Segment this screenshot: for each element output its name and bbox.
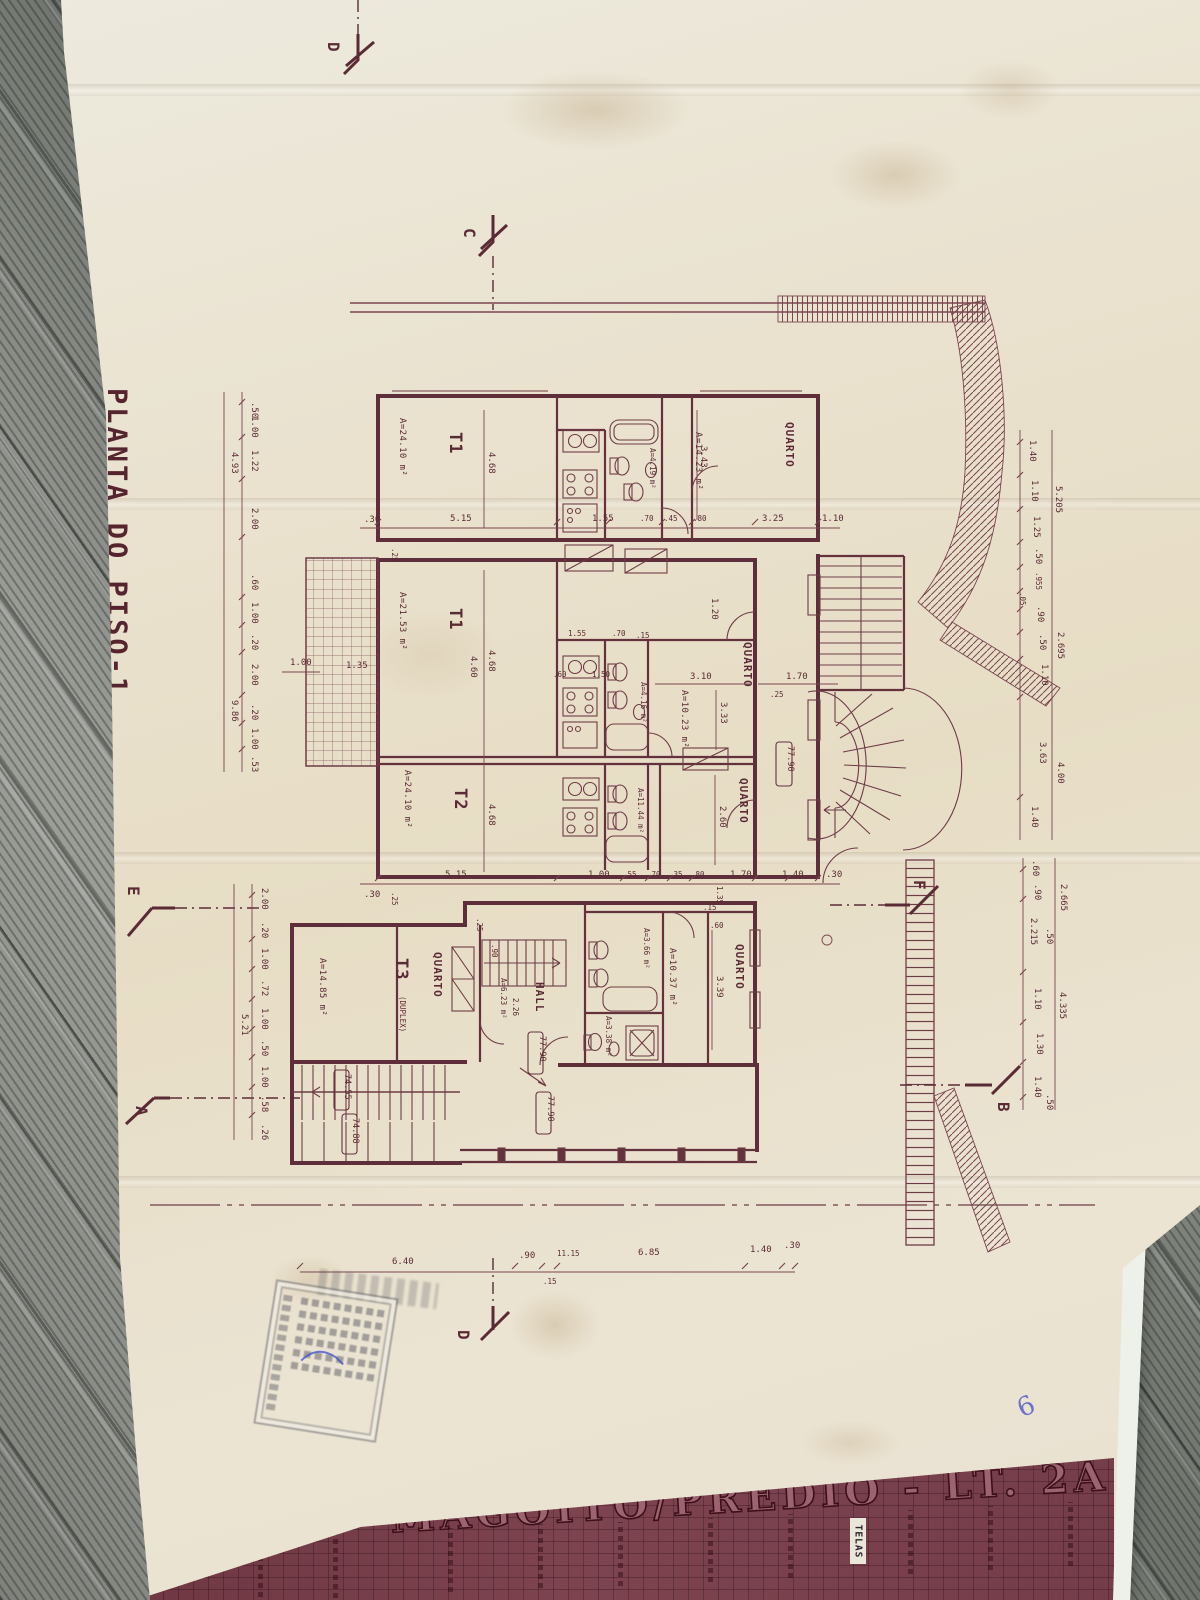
dim-label: 3.33 [718, 702, 728, 724]
dim-label: .25 [390, 892, 399, 906]
dim-label: .30 [826, 870, 842, 880]
dim-label: .20 [249, 704, 259, 720]
dim-label: .50 [1044, 1094, 1054, 1110]
dim-label: 1.40 [1029, 806, 1039, 828]
section-letter: C [460, 228, 479, 238]
dim-label: 3.43 [698, 446, 708, 468]
blueprint-sheet: PLANTA DO PISO-1 [0, 0, 1200, 1600]
bath-area-419: A=4.19 m² [648, 448, 657, 489]
dim-label: 1.00 [588, 870, 610, 880]
dim-label: .30 [364, 890, 380, 900]
dim-label: 4.68 [486, 650, 496, 672]
dim-label: 1.22 [249, 450, 259, 472]
room-label-t2: T2 [450, 788, 470, 810]
dim-total: 4.335 [1057, 992, 1067, 1019]
room-label-quarto-t3: QUARTO [431, 952, 444, 998]
dim-label: .80 [691, 870, 705, 879]
level-label: 77.90 [537, 1036, 547, 1062]
dim-label: 1.10 [1029, 480, 1039, 502]
dim-label: .25 [390, 548, 399, 562]
dim-label: 6.85 [638, 1248, 660, 1258]
dim-label: 1.40 [1027, 440, 1037, 462]
dim-label: 2.00 [249, 508, 259, 530]
title-block-column [708, 1518, 713, 1582]
section-letter: D [324, 42, 343, 52]
room-area-t1a: A=24.10 m² [397, 418, 407, 476]
room-label-quarto-top: QUARTO [783, 422, 796, 468]
dim-label: .30 [364, 515, 380, 525]
dim-label: 1.25 [1031, 516, 1041, 538]
dim-label: .45 [664, 514, 678, 523]
dim-label: .70 [640, 514, 654, 523]
room-area-t2: A=24.10 m² [402, 770, 412, 828]
dim-label: .20 [259, 922, 269, 938]
dim-label: .70 [647, 870, 661, 879]
dim-label: .26 [259, 1124, 269, 1140]
dim-label: 1.00 [290, 658, 312, 668]
dim-label: 5.15 [450, 514, 472, 524]
section-letter: D [454, 1330, 473, 1340]
dim-label: .955 [1034, 572, 1043, 590]
dim-label: 1.00 [259, 1008, 269, 1030]
bath-area-338: A=3.38 m² [604, 1016, 613, 1057]
bath-area-366: A=3.66 m² [642, 928, 651, 969]
title-block-column [988, 1506, 993, 1570]
dim-label: .50 [1037, 634, 1047, 650]
dim-label: 1.10 [822, 514, 844, 524]
dim-label: 1.40 [1032, 1076, 1042, 1098]
dim-total: 2.665 [1058, 884, 1068, 911]
title-block-column [618, 1522, 623, 1586]
room-label-t1a: T1 [445, 432, 465, 454]
floor-plan-drawing: 77.90 77.90 77.90 74.55 74.88 [0, 0, 1200, 1600]
dim-label: 1.50 [592, 670, 611, 679]
room-area-1037: A=10.37 m² [667, 948, 677, 1006]
dim-label: 3.10 [690, 672, 712, 682]
dim-label: 5.15 [445, 870, 467, 880]
dim-label: 1.00 [249, 602, 259, 624]
title-block-column [908, 1510, 913, 1574]
dim-label: 4.68 [486, 804, 496, 826]
dim-label: .90 [490, 944, 499, 958]
room-label-hall: HALL [533, 982, 546, 1013]
dim-label: .60 [710, 921, 724, 930]
dim-label: .55 [623, 870, 637, 879]
room-area-hall: A=6.23 m² [499, 978, 508, 1019]
dim-label: 1.00 [249, 416, 259, 438]
dim-label: .15 [703, 903, 717, 912]
dim-label: 1.30 [1034, 1033, 1044, 1055]
dim-label: .50 [1033, 548, 1043, 564]
hall-depth-dim: 2.26 [511, 998, 520, 1017]
dim-label: .25 [770, 690, 784, 699]
dim-total: 4.00 [1055, 762, 1065, 784]
title-block-column [448, 1528, 453, 1592]
dim-label: .53 [249, 756, 259, 772]
room-area-t1b: A=21.53 m² [397, 592, 407, 650]
title-block-column [538, 1524, 543, 1588]
room-label-quarto-mid: QUARTO [741, 642, 754, 688]
dim-label: 1.00 [259, 1066, 269, 1088]
dim-label: .90 [1032, 884, 1042, 900]
dim-label: 6.40 [392, 1257, 414, 1267]
room-area-quarto-mid: A=10.23 m² [679, 690, 689, 748]
dim-label: 1.00 [249, 728, 259, 750]
title-block-column [1068, 1502, 1073, 1566]
level-label: 74.88 [350, 1118, 360, 1144]
dim-label: 1.40 [750, 1245, 772, 1255]
dim-label: .30 [784, 1241, 800, 1251]
dim-label: .15 [543, 1277, 557, 1286]
dim-label: .60 [249, 574, 259, 590]
level-label: 77.90 [545, 1096, 555, 1122]
dim-label: 4.68 [486, 452, 496, 474]
dim-label: 1.70 [786, 672, 808, 682]
dim-label: 1.35 [346, 661, 368, 671]
room-label-quarto-t2: QUARTO [737, 778, 750, 824]
level-label: 74.55 [342, 1074, 352, 1100]
dim-label: 4.60 [468, 656, 478, 678]
dim-label: .90 [519, 1251, 535, 1261]
dim-label: 3.63 [1037, 742, 1047, 764]
dim-label: .05 [1018, 592, 1027, 606]
dim-label: .50 [259, 1040, 269, 1056]
dim-label: .60 [553, 670, 567, 679]
dim-label: 2.215 [1028, 918, 1038, 945]
dim-label: 2.60 [717, 806, 727, 828]
dim-label: 1.10 [1032, 988, 1042, 1010]
dim-total: 9.86 [229, 700, 239, 722]
bath-area-416: A=4.16 m² [639, 682, 648, 723]
dim-label: 2.00 [259, 888, 269, 910]
dim-label: 1.55 [568, 629, 586, 638]
dim-label: .72 [259, 980, 269, 996]
room-label-quarto-br: QUARTO [733, 944, 746, 990]
title-block-column [788, 1514, 793, 1578]
dim-label: 1.55 [592, 514, 614, 524]
bath-area-1144: A=11.44 m² [636, 788, 645, 833]
dim-label: 1.35 [715, 886, 724, 904]
dim-label: 1.00 [259, 948, 269, 970]
dim-label: 1.70 [730, 870, 752, 880]
interior-partitions [378, 396, 904, 1162]
photo-of-blueprint: PLANTA DO PISO-1 [0, 0, 1200, 1600]
dim-total: 5.205 [1053, 486, 1063, 513]
title-block-column [333, 1534, 338, 1598]
dim-label: .60 [1030, 860, 1040, 876]
dim-label: 1.40 [782, 870, 804, 880]
dim-label: .15 [636, 631, 650, 640]
dim-label: 3.25 [762, 514, 784, 524]
room-area-t3: A=14.85 m² [317, 958, 327, 1016]
dim-label: .35 [669, 870, 683, 879]
dim-label: 11.15 [557, 1249, 580, 1258]
dim-label: .80 [693, 514, 707, 523]
room-label-t3: T3 [391, 958, 411, 980]
dim-total: 5.21 [239, 1014, 249, 1036]
section-letter: B [994, 1102, 1013, 1112]
section-letter: A [132, 1106, 151, 1116]
dim-label: .25 [475, 918, 484, 932]
dim-label: .90 [1035, 606, 1045, 622]
dim-label: 2.00 [249, 664, 259, 686]
section-letter: F [910, 880, 929, 890]
telas-tag: TELAS [850, 1518, 866, 1564]
dim-label: .50 [1044, 928, 1054, 944]
dim-label: 3.39 [714, 976, 724, 998]
room-label-t3-suffix: (DUPLEX) [398, 996, 407, 1032]
dim-label: 1.20 [709, 598, 719, 620]
dim-label: .20 [249, 634, 259, 650]
room-label-t1b: T1 [445, 608, 465, 630]
level-label: 77.90 [785, 746, 795, 772]
dim-total: 2.695 [1055, 632, 1065, 659]
section-letter: E [124, 886, 143, 896]
dim-label: 1.10 [1039, 664, 1049, 686]
dim-total: 4.93 [229, 452, 239, 474]
dim-label: .58 [259, 1096, 269, 1112]
dim-label: .70 [612, 629, 626, 638]
